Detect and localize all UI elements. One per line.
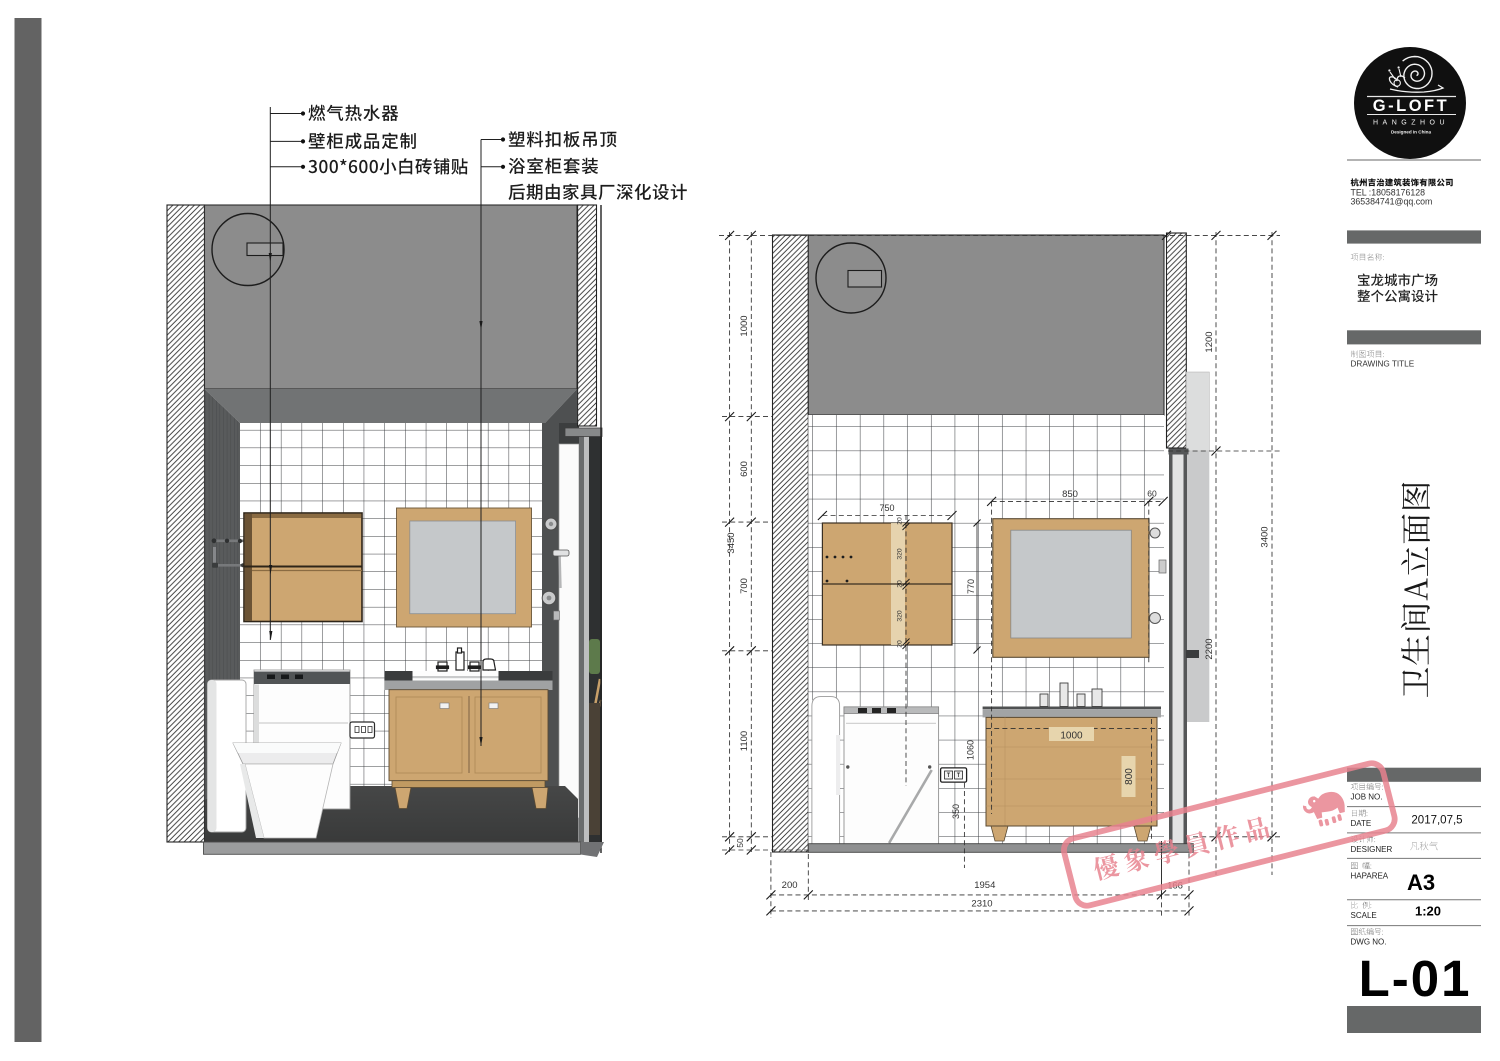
svg-text:HAPAREA: HAPAREA — [1351, 872, 1389, 881]
svg-text:800: 800 — [1124, 768, 1135, 785]
svg-text:SCALE: SCALE — [1351, 911, 1377, 920]
svg-text:750: 750 — [879, 503, 894, 513]
svg-text:50: 50 — [735, 838, 745, 848]
svg-text:JOB NO.: JOB NO. — [1351, 793, 1383, 802]
svg-text:1200: 1200 — [1204, 331, 1215, 352]
svg-text:20: 20 — [896, 580, 903, 588]
svg-text:L-01: L-01 — [1359, 950, 1472, 1007]
svg-text:DWG NO.: DWG NO. — [1351, 938, 1387, 947]
svg-text:1100: 1100 — [739, 731, 750, 751]
svg-text:G-LOFT: G-LOFT — [1373, 97, 1449, 115]
svg-text:DESIGNER: DESIGNER — [1351, 845, 1393, 854]
svg-text:2200: 2200 — [1204, 638, 1215, 659]
svg-text:1:20: 1:20 — [1415, 904, 1441, 919]
svg-text:320: 320 — [896, 610, 903, 622]
svg-text:HANGZHOU: HANGZHOU — [1373, 120, 1449, 127]
svg-text:A3: A3 — [1407, 870, 1435, 895]
svg-text:1060: 1060 — [965, 740, 975, 760]
svg-text:700: 700 — [739, 578, 750, 594]
svg-text:3450: 3450 — [726, 532, 737, 553]
svg-text:850: 850 — [1062, 489, 1078, 500]
svg-text:20: 20 — [896, 640, 903, 648]
svg-text:770: 770 — [966, 579, 976, 594]
svg-text:200: 200 — [782, 880, 798, 891]
svg-text:3400: 3400 — [1259, 526, 1270, 547]
svg-text:1000: 1000 — [1060, 731, 1083, 742]
svg-text:1954: 1954 — [974, 880, 995, 891]
svg-text:600: 600 — [739, 461, 750, 477]
svg-text:60: 60 — [1147, 489, 1157, 499]
svg-text:365384741@qq.com: 365384741@qq.com — [1351, 197, 1433, 207]
svg-text:320: 320 — [896, 548, 903, 560]
svg-text:DRAWING TITLE: DRAWING TITLE — [1351, 360, 1415, 369]
svg-text:DATE: DATE — [1351, 819, 1372, 828]
svg-text:Designed in China: Designed in China — [1391, 130, 1432, 135]
svg-text:1000: 1000 — [739, 315, 750, 336]
svg-text:2017,07,5: 2017,07,5 — [1411, 815, 1462, 827]
svg-text:350: 350 — [951, 804, 961, 819]
svg-text:20: 20 — [896, 517, 903, 525]
svg-text:2310: 2310 — [971, 899, 992, 910]
